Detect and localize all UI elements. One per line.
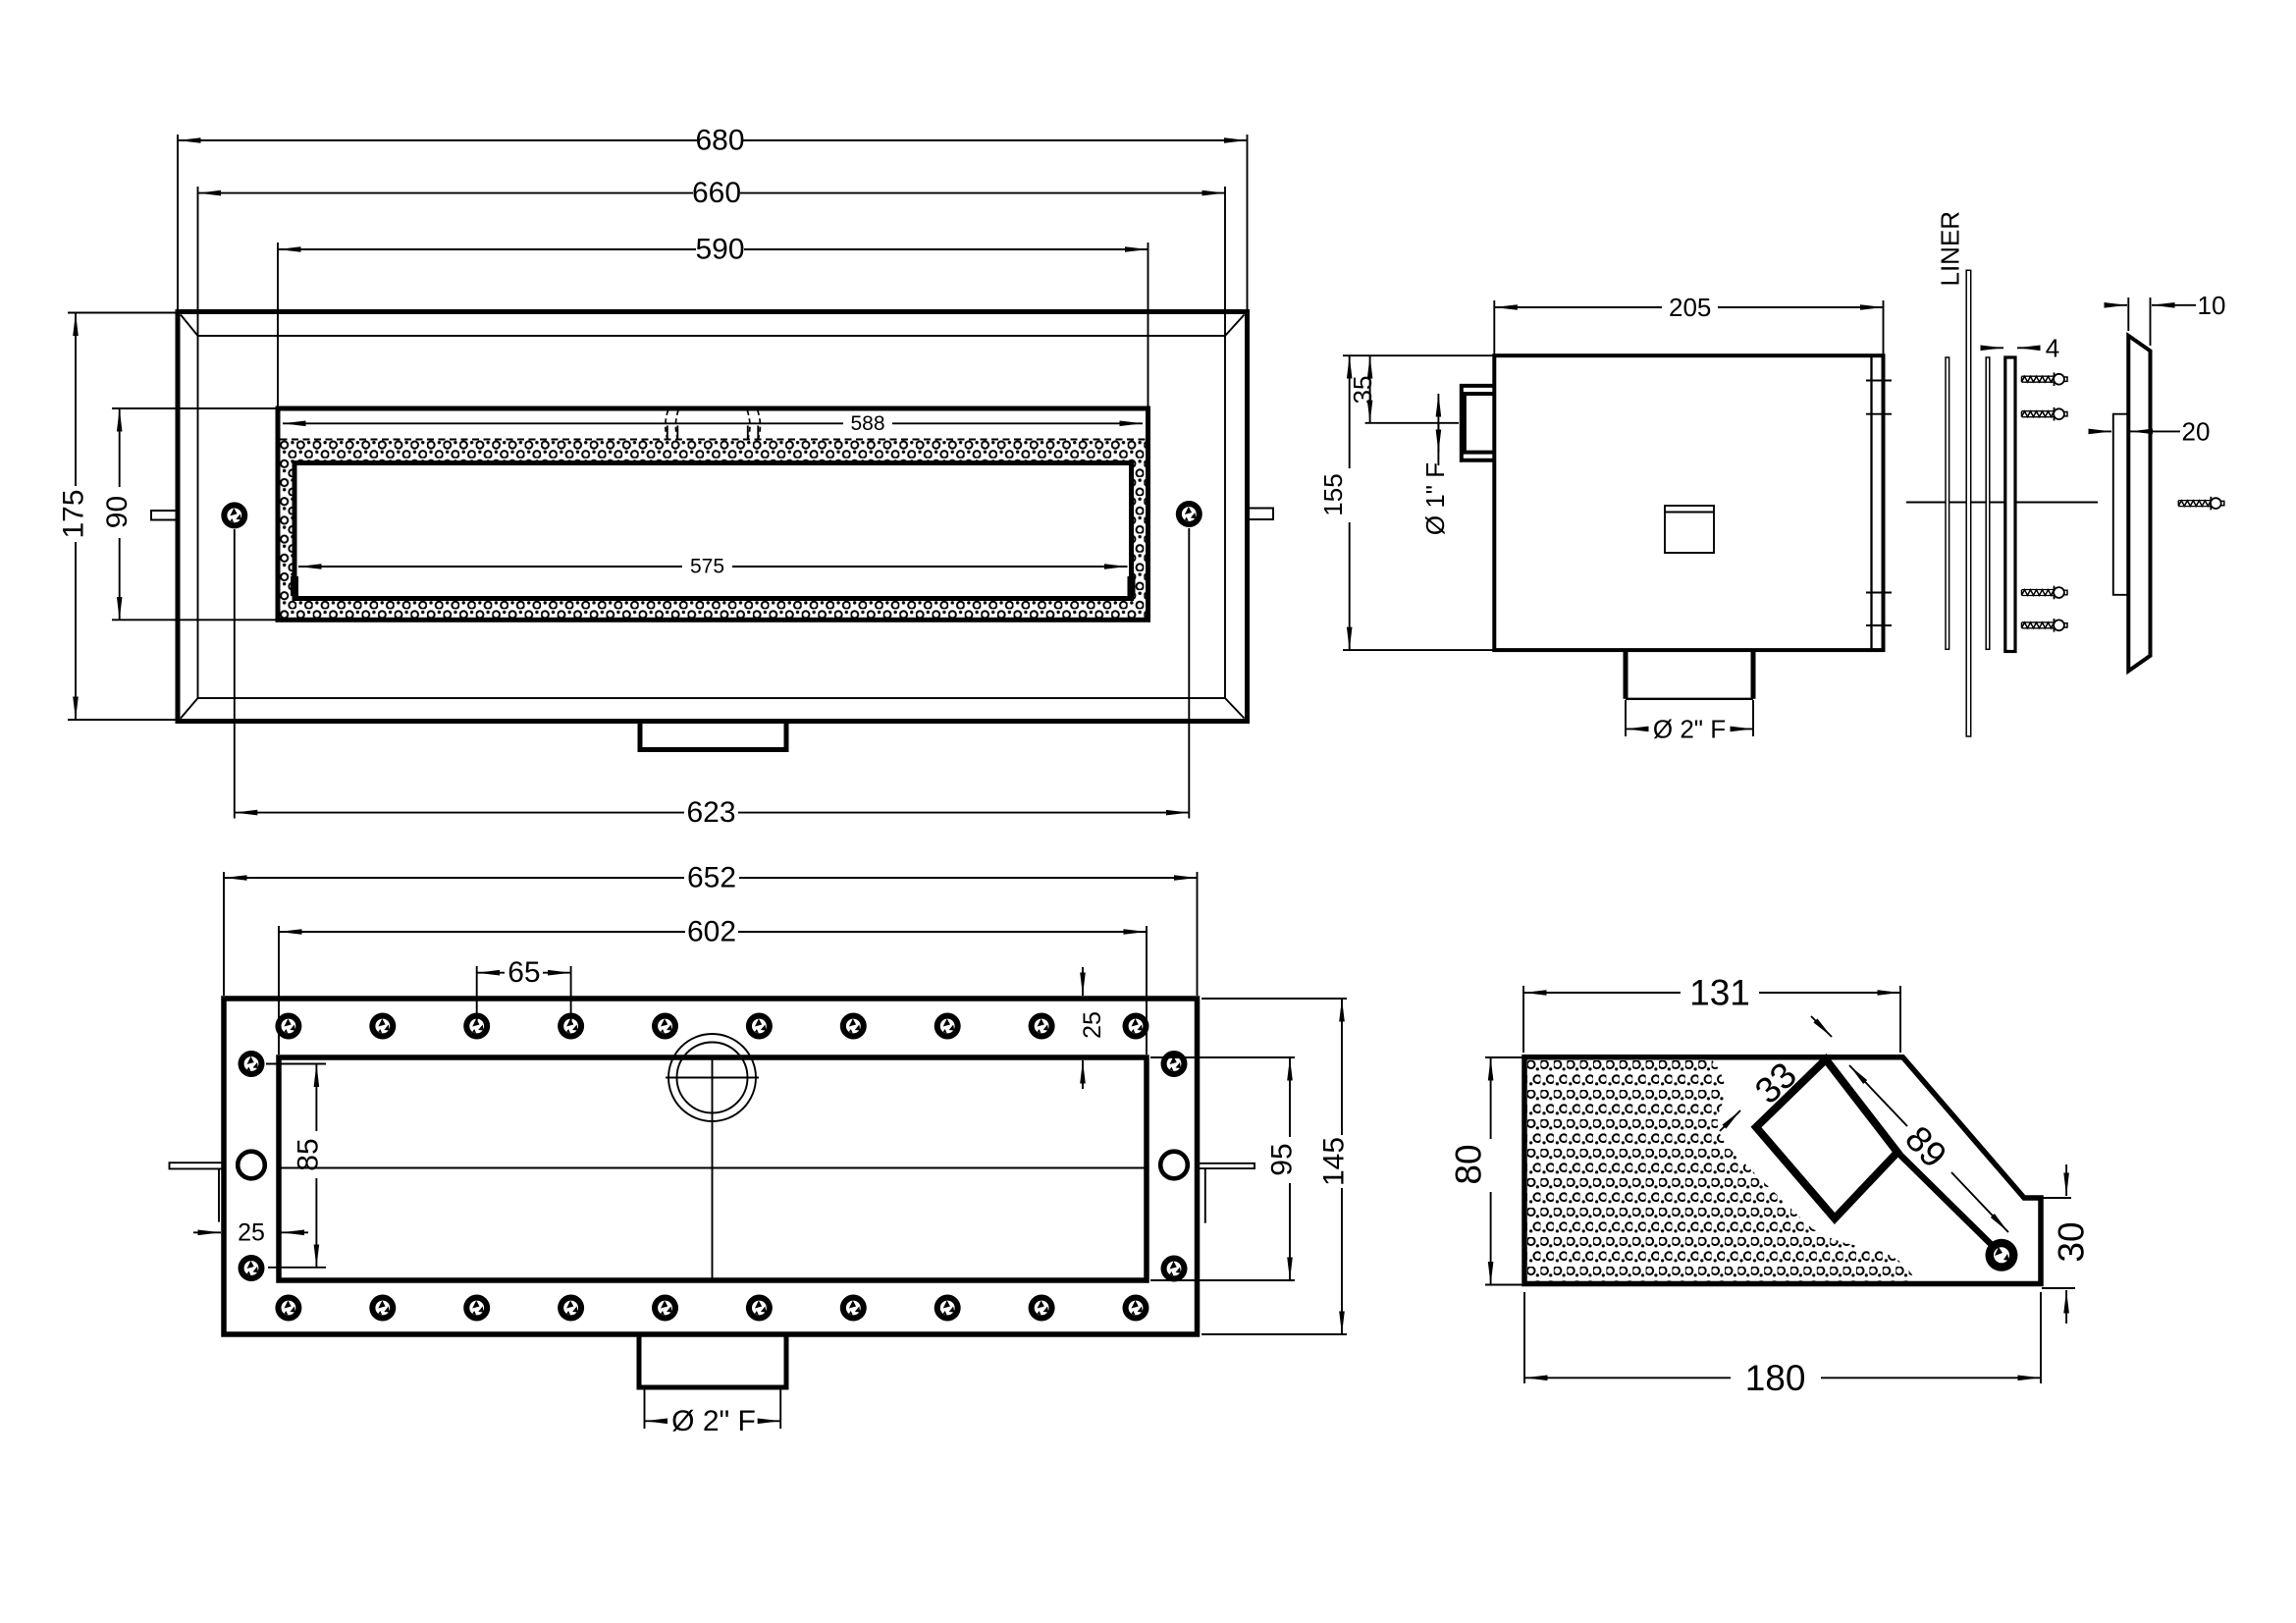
svg-text:4: 4 xyxy=(2046,333,2059,362)
svg-text:10: 10 xyxy=(2198,291,2226,320)
svg-text:588: 588 xyxy=(850,412,884,435)
svg-text:175: 175 xyxy=(58,489,90,538)
svg-text:180: 180 xyxy=(1745,1358,1806,1398)
svg-text:35: 35 xyxy=(1348,376,1377,405)
svg-text:205: 205 xyxy=(1669,293,1711,322)
svg-text:Ø 2" F: Ø 2" F xyxy=(671,1405,756,1437)
svg-text:623: 623 xyxy=(686,796,735,829)
svg-text:30: 30 xyxy=(2052,1221,2092,1262)
svg-text:65: 65 xyxy=(507,956,540,989)
svg-text:25: 25 xyxy=(1079,1011,1106,1039)
svg-text:95: 95 xyxy=(1266,1143,1299,1175)
svg-text:155: 155 xyxy=(1318,473,1348,515)
svg-text:Ø 1" F: Ø 1" F xyxy=(1420,462,1450,535)
svg-text:25: 25 xyxy=(238,1218,265,1246)
svg-text:590: 590 xyxy=(695,234,744,266)
svg-text:Ø 2" F: Ø 2" F xyxy=(1653,714,1726,743)
svg-text:145: 145 xyxy=(1318,1137,1351,1186)
svg-text:660: 660 xyxy=(692,177,741,209)
svg-text:680: 680 xyxy=(695,125,744,157)
svg-text:20: 20 xyxy=(2182,416,2211,446)
svg-text:80: 80 xyxy=(1449,1144,1489,1184)
svg-text:602: 602 xyxy=(687,916,736,948)
svg-text:575: 575 xyxy=(690,556,724,578)
svg-text:85: 85 xyxy=(293,1138,325,1170)
svg-text:131: 131 xyxy=(1689,973,1750,1013)
svg-text:90: 90 xyxy=(101,496,133,528)
svg-text:LINER: LINER xyxy=(1936,211,1965,287)
svg-text:652: 652 xyxy=(687,862,736,894)
